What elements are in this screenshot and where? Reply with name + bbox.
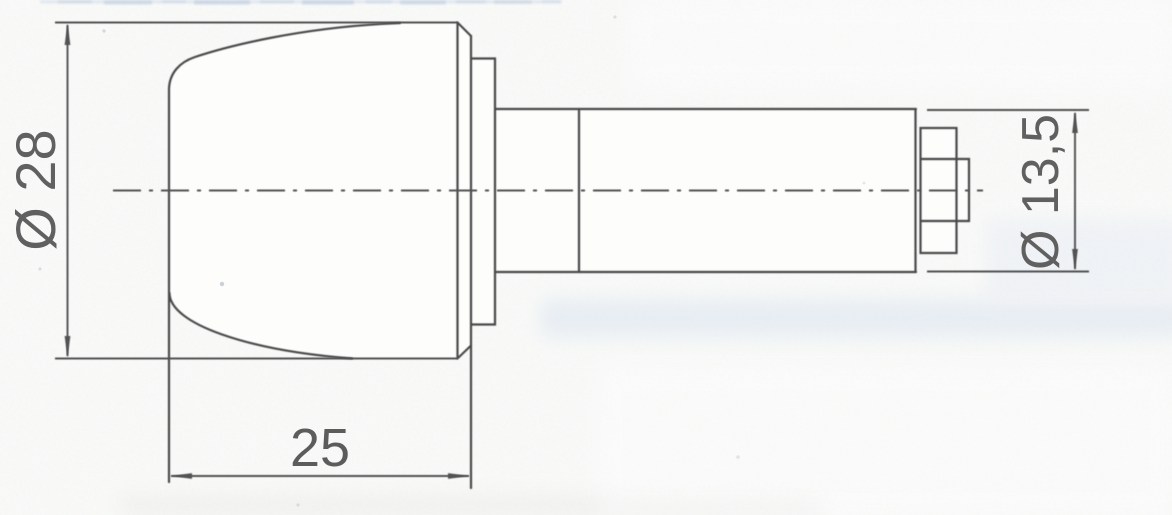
svg-text:Ø 28: Ø 28 <box>4 129 67 250</box>
svg-text:Ø 13,5: Ø 13,5 <box>1012 114 1070 270</box>
svg-text:25: 25 <box>290 418 350 478</box>
